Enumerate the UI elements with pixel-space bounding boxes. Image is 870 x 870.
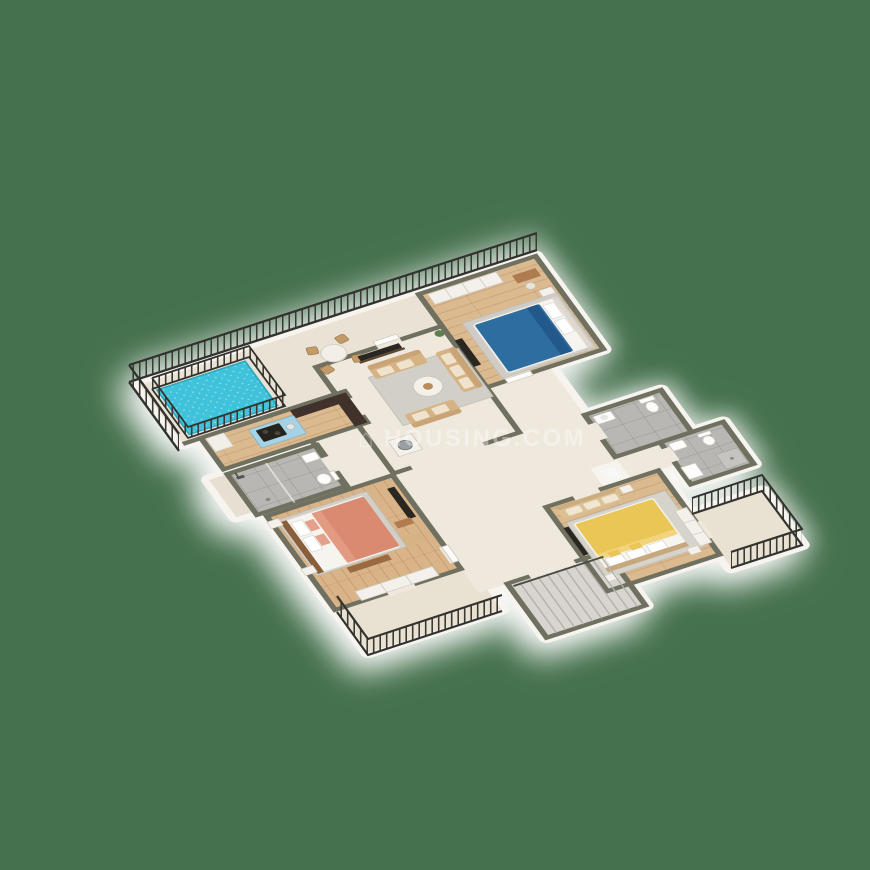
- floor-plan-render: ⌂ HOUSING.COM: [0, 0, 870, 870]
- watermark-text: HOUSING.COM: [384, 425, 586, 452]
- watermark: ⌂ HOUSING.COM: [358, 423, 586, 453]
- floor-plan-svg: ⌂ HOUSING.COM: [0, 0, 870, 870]
- watermark-logo: ⌂: [358, 423, 374, 453]
